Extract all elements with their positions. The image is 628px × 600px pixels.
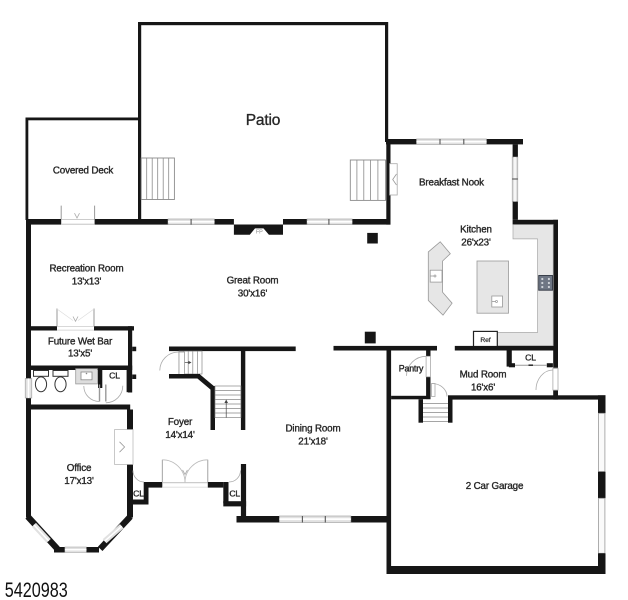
svg-text:Covered Deck: Covered Deck: [53, 166, 114, 177]
svg-text:2 Car Garage: 2 Car Garage: [466, 481, 524, 492]
svg-text:Foyer: Foyer: [168, 417, 193, 428]
svg-text:26'x23': 26'x23': [461, 238, 491, 249]
svg-text:30'x16': 30'x16': [238, 289, 268, 300]
svg-text:Mud Room: Mud Room: [460, 369, 507, 380]
svg-text:CL: CL: [133, 488, 144, 498]
svg-text:Office: Office: [67, 463, 92, 474]
svg-text:Kitchen: Kitchen: [460, 224, 492, 235]
svg-text:5420983: 5420983: [5, 579, 68, 600]
svg-text:Ref: Ref: [480, 337, 490, 344]
svg-text:CL: CL: [229, 488, 240, 498]
svg-text:Breakfast Nook: Breakfast Nook: [419, 178, 484, 189]
svg-text:Dining Room: Dining Room: [286, 423, 341, 434]
svg-text:13'x13': 13'x13': [72, 277, 102, 288]
svg-text:17'x13': 17'x13': [64, 476, 94, 487]
svg-text:14'x14': 14'x14': [165, 430, 195, 441]
svg-text:13'x5': 13'x5': [68, 349, 92, 360]
svg-text:21'x18': 21'x18': [298, 437, 328, 448]
svg-text:FP: FP: [256, 230, 263, 236]
svg-text:Patio: Patio: [246, 112, 281, 129]
svg-text:16'x6': 16'x6': [471, 383, 495, 394]
svg-text:Pantry: Pantry: [399, 363, 424, 373]
svg-text:Great Room: Great Room: [227, 275, 279, 286]
svg-text:CL: CL: [525, 353, 536, 363]
svg-text:Future Wet Bar: Future Wet Bar: [48, 336, 113, 347]
svg-text:CL: CL: [109, 371, 120, 381]
svg-text:Recreation Room: Recreation Room: [50, 263, 124, 274]
